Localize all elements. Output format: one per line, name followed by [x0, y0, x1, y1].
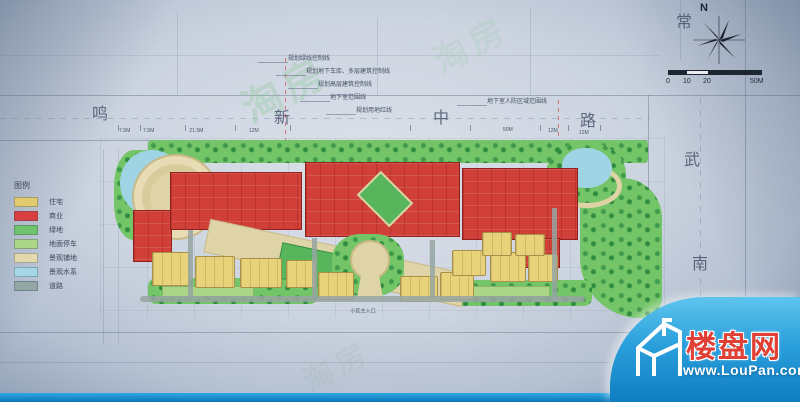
residential-building [195, 256, 235, 288]
dim-label-4: 12M [249, 128, 259, 133]
dim-tick [540, 125, 541, 131]
north-road-char-lu: 路 [580, 107, 596, 131]
legend-row-paving: 景观铺地 [14, 251, 77, 265]
context-line-2 [377, 18, 378, 95]
callout-red-line: 规划用地红线 [356, 105, 392, 114]
legend-label-residential: 住宅 [49, 197, 63, 207]
north-road-char-xin: 新 [274, 104, 290, 128]
dim-tick [235, 125, 236, 131]
residential-building [240, 258, 282, 288]
callout-basement-multistorey-line: 规划地下车库、多层建筑控制线 [306, 66, 390, 75]
callout-highrise-line: 规划高层建筑控制线 [318, 79, 372, 88]
scale-bar-gap [687, 71, 707, 74]
legend-title: 图例 [14, 180, 77, 191]
commercial-block-3 [462, 168, 578, 240]
scale-tick-50: 50M [750, 78, 764, 85]
residential-building [490, 252, 526, 282]
legend-swatch-parking [14, 239, 38, 249]
watermark-site-name: 楼盘网 [686, 322, 782, 366]
scale-tick-10: 10 [683, 78, 691, 85]
internal-road-1 [188, 230, 193, 298]
callout-civil-defense-line: 地下室人防区域范围线 [487, 96, 547, 105]
context-line-1 [177, 12, 178, 95]
dim-tick [600, 125, 601, 131]
internal-road-3 [430, 240, 435, 298]
legend-swatch-water [14, 267, 38, 277]
east-road-char-nan: 南 [692, 250, 708, 274]
internal-road-south [140, 296, 585, 302]
legend-row-road: 道路 [14, 279, 77, 293]
legend-swatch-residential [14, 197, 38, 207]
legend-label-greenery: 绿地 [49, 225, 63, 235]
dim-tick [185, 125, 186, 131]
internal-road-4 [552, 208, 557, 300]
legend-swatch-paving [14, 253, 38, 263]
legend-label-water: 景观水系 [49, 267, 77, 277]
legend-label-paving: 景观铺地 [49, 253, 77, 263]
scale-tick-0: 0 [666, 78, 670, 85]
residential-building [152, 252, 190, 286]
dim-label-3: 21.5M [189, 128, 203, 133]
dim-label-1: 7.5M [119, 128, 130, 133]
legend-row-parking: 地面停车 [14, 237, 77, 251]
watermark-url[interactable]: www.LouPan.com [683, 362, 800, 378]
fountain-circle-plaza [350, 240, 390, 280]
internal-road-2 [312, 238, 317, 298]
north-road-char-zhong: 中 [433, 104, 449, 128]
dim-tick [140, 125, 141, 131]
legend-label-road: 道路 [49, 281, 63, 291]
legend-label-commercial: 商业 [49, 211, 63, 221]
scale-tick-20: 20 [703, 78, 711, 85]
residential-building [482, 232, 512, 256]
dim-label-7: 12M [579, 130, 589, 135]
residential-building [515, 234, 545, 256]
legend-swatch-road [14, 281, 38, 291]
dim-tick [568, 125, 569, 131]
dim-label-6: 12M [548, 128, 558, 133]
legend-label-parking: 地面停车 [49, 239, 77, 249]
north-road-char-ming: 鸣 [92, 100, 108, 124]
dim-tick [470, 125, 471, 131]
house-icon [634, 318, 684, 385]
dim-label-5: 50M [503, 127, 513, 132]
dim-label-2: 7.5M [143, 128, 154, 133]
callout-basement-extent-line: 地下室范围线 [330, 92, 366, 101]
callout-green-line: 规划绿线控制线 [288, 53, 330, 62]
residential-building [452, 250, 486, 276]
legend-row-water: 景观水系 [14, 265, 77, 279]
legend-row-commercial: 商业 [14, 209, 77, 223]
context-line-3 [530, 8, 531, 95]
site-plan [100, 138, 665, 318]
east-road-char-wu: 武 [684, 146, 700, 170]
fountain-plaza-apron [357, 276, 383, 298]
main-entrance-label: 小区主入口 [350, 307, 376, 315]
north-road-edge-line [0, 95, 800, 96]
scale-bar [668, 70, 762, 75]
legend-row-residential: 住宅 [14, 195, 77, 209]
dim-tick [410, 125, 411, 131]
dim-tick [290, 125, 291, 131]
north-label: N [700, 2, 708, 14]
east-road-char-chang: 常 [676, 8, 692, 32]
legend: 图例 住宅 商业 绿地 地面停车 景观铺地 景观水系 道路 [14, 180, 77, 293]
compass-rose-icon [693, 16, 745, 69]
legend-row-greenery: 绿地 [14, 223, 77, 237]
commercial-block-1 [170, 172, 302, 230]
legend-swatch-greenery [14, 225, 38, 235]
legend-swatch-commercial [14, 211, 38, 221]
